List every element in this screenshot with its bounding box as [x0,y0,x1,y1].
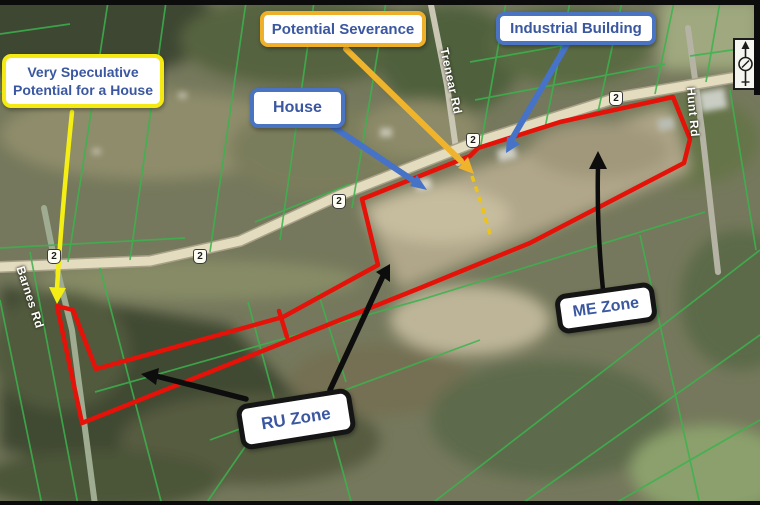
callout-house: House [250,88,345,128]
highway-2-shield: 2 [47,249,61,264]
frame-right [754,0,760,95]
highway-2-shield: 2 [466,133,480,148]
aerial-zoning-map: Trenear Rd Hunt Rd Barnes Rd 2 2 2 2 2 V… [0,0,760,505]
callout-very-speculative: Very Speculative Potential for a House [2,54,164,108]
frame-top [0,0,760,5]
highway-2-shield: 2 [193,249,207,264]
highway-2-shield: 2 [332,194,346,209]
callout-industrial-building: Industrial Building [496,12,656,45]
frame-bottom [0,501,760,505]
north-arrow-icon [735,40,756,88]
highway-2-shield: 2 [609,91,623,106]
callout-potential-severance: Potential Severance [260,11,426,47]
